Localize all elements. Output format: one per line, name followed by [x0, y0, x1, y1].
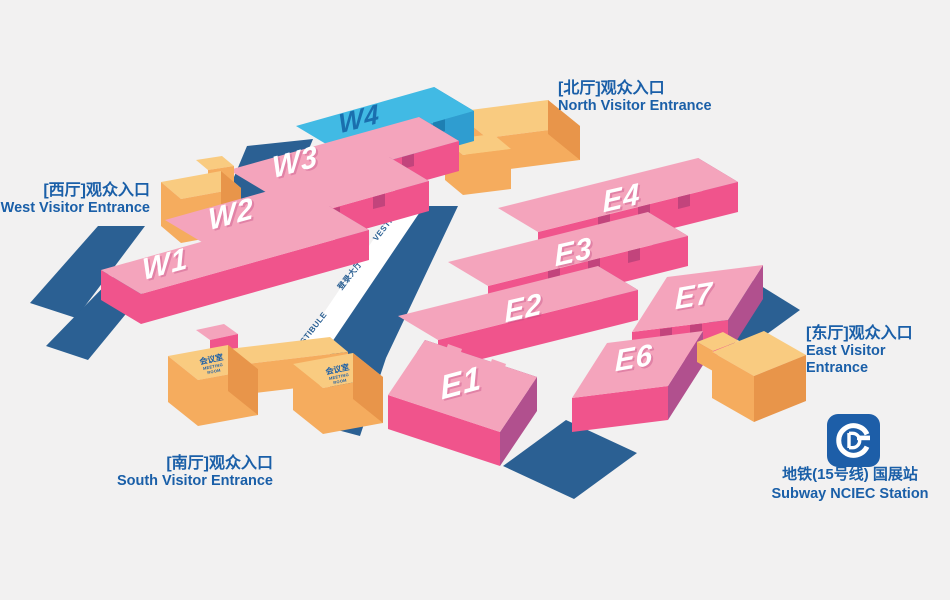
east-entrance-cn: [东厅]观众入口 [806, 325, 950, 343]
west-entrance-en: West Visitor Entrance [0, 200, 150, 217]
hall-E6-label: E6 [615, 338, 653, 378]
entrance-label-north: [北厅]观众入口 North Visitor Entrance [558, 80, 712, 115]
north-entrance-en: North Visitor Entrance [558, 98, 712, 115]
south-entrance-en: South Visitor Entrance [73, 473, 273, 490]
entrance-label-west: [西厅]观众入口 West Visitor Entrance [0, 182, 150, 217]
hall-E1[interactable]: E1 [388, 340, 537, 466]
entrance-label-south: [南厅]观众入口 South Visitor Entrance [73, 455, 273, 490]
south-entrance-cn: [南厅]观众入口 [73, 455, 273, 473]
subway-en: Subway NCIEC Station [760, 485, 940, 503]
nciec-venue-map: VESTIBULE 登录大厅 VESTIBULE W4 W3 [0, 0, 950, 600]
east-entrance-building [697, 331, 806, 422]
hall-E6[interactable]: E6 [572, 331, 703, 432]
plaza-south [503, 420, 637, 499]
north-entrance-cn: [北厅]观众入口 [558, 80, 712, 98]
map-canvas: VESTIBULE 登录大厅 VESTIBULE W4 W3 [0, 0, 950, 600]
subway-cn: 地铁(15号线) 国展站 [760, 466, 940, 485]
subway-station-label: 地铁(15号线) 国展站 Subway NCIEC Station [760, 466, 940, 503]
west-entrance-cn: [西厅]观众入口 [0, 182, 150, 200]
north-entrance-arm-front [463, 149, 511, 195]
subway-station-icon [827, 414, 880, 467]
entrance-label-east: [东厅]观众入口 East Visitor Entrance [806, 325, 950, 377]
hall-E7-label: E7 [675, 276, 713, 316]
east-entrance-en: East Visitor Entrance [806, 343, 950, 376]
